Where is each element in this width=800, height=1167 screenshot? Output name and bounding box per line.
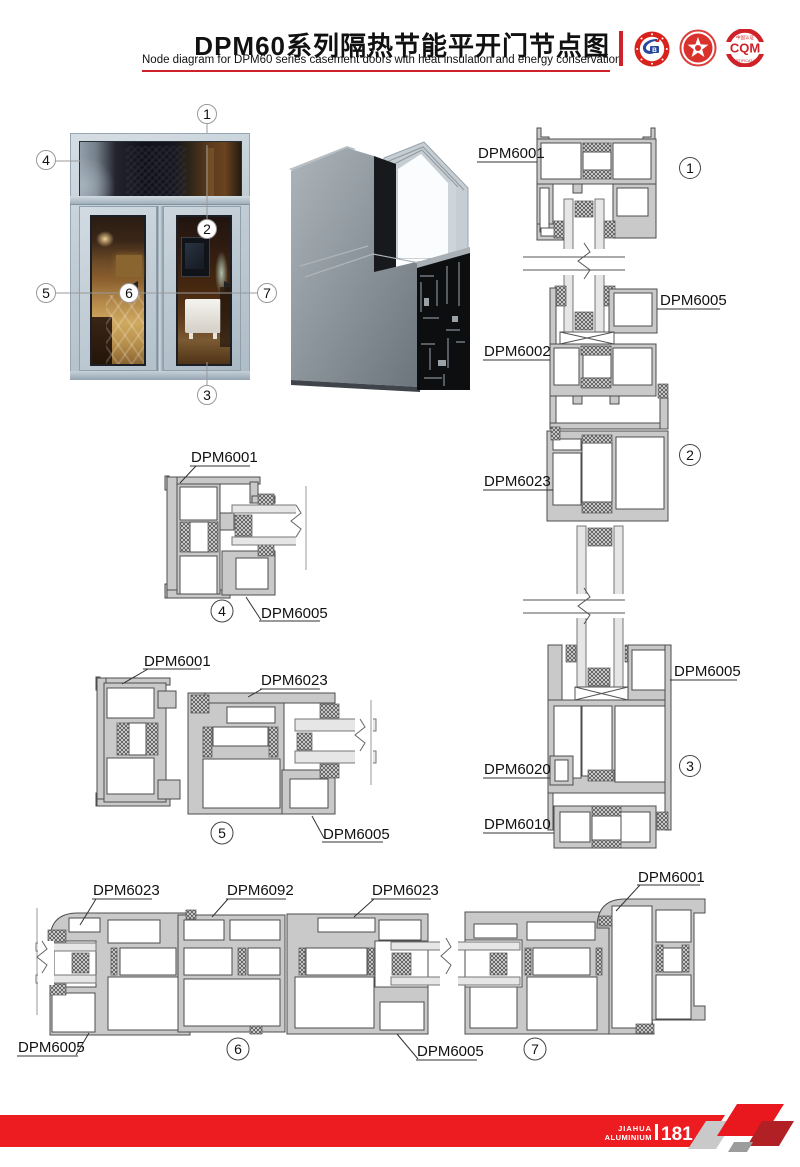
svg-text:DPM6023: DPM6023: [372, 882, 439, 899]
svg-text:5: 5: [42, 285, 50, 301]
svg-text:4: 4: [42, 152, 50, 168]
svg-text:2: 2: [686, 447, 694, 463]
svg-text:7: 7: [531, 1041, 539, 1057]
svg-text:DPM6002: DPM6002: [484, 343, 551, 360]
svg-text:DPM6001: DPM6001: [191, 449, 258, 466]
svg-text:JIAHUA: JIAHUA: [618, 1124, 652, 1133]
svg-text:DPM6005: DPM6005: [261, 605, 328, 622]
svg-text:DPM6005: DPM6005: [660, 292, 727, 309]
svg-text:6: 6: [234, 1041, 242, 1057]
svg-text:DPM6005: DPM6005: [417, 1043, 484, 1060]
svg-text:181: 181: [661, 1124, 693, 1145]
svg-text:DPM6005: DPM6005: [323, 826, 390, 843]
svg-text:DPM6020: DPM6020: [484, 761, 551, 778]
svg-text:DPM6001: DPM6001: [638, 869, 705, 886]
svg-text:DPM6023: DPM6023: [93, 882, 160, 899]
svg-text:1: 1: [686, 160, 694, 176]
svg-text:3: 3: [203, 387, 211, 403]
svg-text:DPM6023: DPM6023: [484, 473, 551, 490]
svg-text:4: 4: [218, 603, 226, 619]
svg-text:DPM6092: DPM6092: [227, 882, 294, 899]
svg-text:1: 1: [203, 106, 211, 122]
svg-text:DPM6010: DPM6010: [484, 816, 551, 833]
svg-text:7: 7: [263, 285, 271, 301]
svg-text:3: 3: [686, 758, 694, 774]
svg-text:ALUMINIUM: ALUMINIUM: [605, 1133, 652, 1142]
svg-text:DPM6023: DPM6023: [261, 672, 328, 689]
svg-text:DPM6005: DPM6005: [18, 1039, 85, 1056]
svg-text:DPM6005: DPM6005: [674, 663, 741, 680]
svg-text:2: 2: [203, 221, 211, 237]
svg-text:DPM6001: DPM6001: [144, 653, 211, 670]
svg-text:6: 6: [125, 285, 133, 301]
svg-text:5: 5: [218, 825, 226, 841]
svg-text:DPM6001: DPM6001: [478, 145, 545, 162]
